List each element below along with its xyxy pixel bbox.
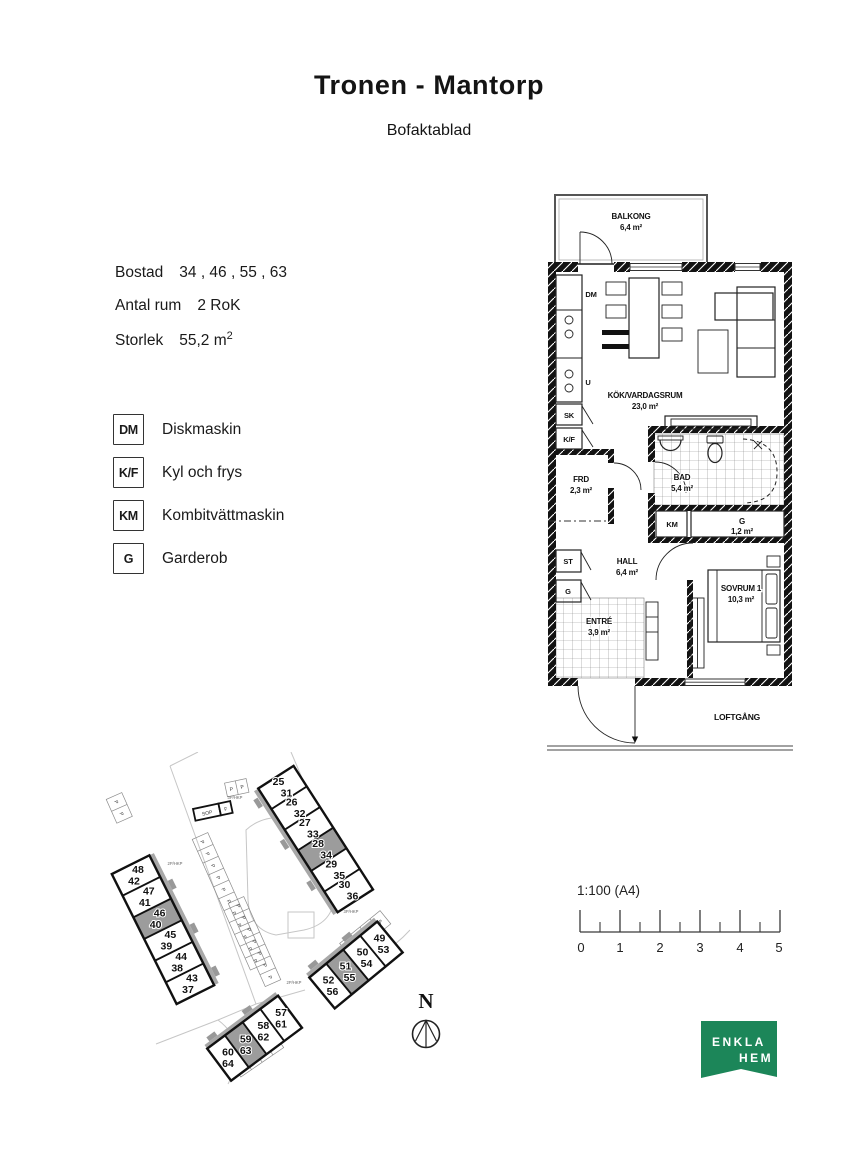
waste-building: SOP F xyxy=(193,801,233,821)
bedroom-furniture: SOVRUM 1 10,3 m² xyxy=(656,543,780,668)
svg-text:57: 57 xyxy=(275,1007,287,1019)
hkp-label: 2P/HKP xyxy=(168,861,183,866)
superscript: 2 xyxy=(227,330,233,342)
sofa xyxy=(715,293,773,320)
dining-furniture xyxy=(602,278,682,358)
storage-room: FRD 2,3 m² xyxy=(549,463,641,521)
sink-icon xyxy=(565,316,573,324)
logo-line1: ENKLA xyxy=(712,1035,766,1049)
svg-text:P: P xyxy=(234,904,241,910)
balcony: BALKONG 6,4 m² xyxy=(555,195,707,264)
room-bedroom-area: 10,3 m² xyxy=(728,595,755,604)
legend: DM Diskmaskin K/F Kyl och frys KM Kombit… xyxy=(113,414,284,574)
info-value: 55,2 m2 xyxy=(179,330,233,350)
svg-text:54: 54 xyxy=(361,958,373,970)
closets: KM G 1,2 m² xyxy=(656,511,784,537)
label-st: ST xyxy=(563,557,573,566)
svg-text:37: 37 xyxy=(182,984,194,996)
svg-text:29: 29 xyxy=(325,858,337,870)
legend-symbol-box: KM xyxy=(113,500,144,531)
scale-bar: 1:100 (A4) 0 1 2 3 4 5 xyxy=(577,883,787,963)
room-closet-label: G xyxy=(739,517,745,526)
legend-item-dm: DM Diskmaskin xyxy=(113,414,284,445)
coffee-table xyxy=(698,330,728,373)
svg-text:52: 52 xyxy=(323,975,335,987)
svg-text:P: P xyxy=(219,887,226,893)
brand-logo: ENKLA HEM xyxy=(701,1021,777,1083)
building-37-48 xyxy=(112,851,223,1004)
legend-symbol-box: DM xyxy=(113,414,144,445)
hall: ST G HALL 6,4 m² xyxy=(556,550,638,602)
svg-text:P: P xyxy=(266,975,273,981)
info-label: Bostad xyxy=(115,264,163,282)
hkp-label: 3P/HKP xyxy=(344,909,359,914)
room-entry-label: ENTRÉ xyxy=(586,617,613,626)
shoe-cabinet xyxy=(646,602,658,660)
scale-tick-numbers: 0 1 2 3 4 5 xyxy=(577,940,782,955)
label-g: G xyxy=(565,587,571,596)
entry-tiles xyxy=(556,598,644,678)
bed xyxy=(708,570,780,642)
pillow xyxy=(766,574,777,604)
legend-label: Kombitvättmaskin xyxy=(162,507,284,525)
svg-text:P: P xyxy=(112,800,119,806)
svg-text:P: P xyxy=(229,786,234,793)
room-kitchen-living-label: KÖK/VARDAGSRUM xyxy=(608,391,683,400)
svg-text:0: 0 xyxy=(577,940,584,955)
svg-text:P: P xyxy=(250,939,257,945)
logo-ribbon-icon xyxy=(701,1021,777,1078)
building-57-64 xyxy=(202,988,302,1081)
svg-text:51: 51 xyxy=(340,961,352,973)
legend-symbol-box: G xyxy=(113,543,144,574)
label-sk: SK xyxy=(564,411,575,420)
svg-text:25: 25 xyxy=(273,776,285,788)
svg-text:36: 36 xyxy=(347,891,359,903)
building-49-56 xyxy=(303,914,403,1009)
svg-text:2: 2 xyxy=(656,940,663,955)
svg-text:P: P xyxy=(245,927,252,933)
svg-text:58: 58 xyxy=(258,1020,270,1032)
label-kf: K/F xyxy=(563,435,575,444)
svg-text:P: P xyxy=(261,963,268,969)
room-hall-area: 6,4 m² xyxy=(616,568,638,577)
svg-text:64: 64 xyxy=(222,1058,234,1070)
info-value: 2 RoK xyxy=(197,297,240,315)
svg-text:P: P xyxy=(118,811,125,817)
nightstand xyxy=(767,556,780,567)
apartment-info: Bostad 34 , 46 , 55 , 63 Antal rum 2 RoK… xyxy=(115,264,287,350)
kitchen-fixtures: DM U SK K/F xyxy=(556,275,597,449)
svg-text:P: P xyxy=(255,951,262,957)
svg-text:P: P xyxy=(209,863,216,869)
svg-text:42: 42 xyxy=(128,876,140,888)
legend-label: Kyl och frys xyxy=(162,464,242,482)
svg-text:44: 44 xyxy=(175,951,187,963)
svg-text:30: 30 xyxy=(339,879,351,891)
room-bath-label: BAD xyxy=(674,473,691,482)
svg-text:61: 61 xyxy=(275,1018,287,1030)
scale-label: 1:100 (A4) xyxy=(577,883,787,898)
svg-text:P: P xyxy=(240,915,247,921)
hob-icon xyxy=(565,384,573,392)
info-value: 34 , 46 , 55 , 63 xyxy=(179,264,287,282)
label-oven: U xyxy=(585,378,590,387)
svg-text:63: 63 xyxy=(240,1045,252,1057)
parking-row: PPPPPPPPPPP xyxy=(192,833,266,971)
svg-text:27: 27 xyxy=(299,817,311,829)
info-row-antal-rum: Antal rum 2 RoK xyxy=(115,297,287,315)
scale-ruler: 0 1 2 3 4 5 xyxy=(577,900,787,958)
svg-text:26: 26 xyxy=(286,797,298,809)
walkway: LOFTGÅNG xyxy=(547,712,793,750)
svg-text:43: 43 xyxy=(186,973,198,985)
hob-icon xyxy=(565,370,573,378)
label-dishwasher: DM xyxy=(585,290,596,299)
svg-text:38: 38 xyxy=(171,962,183,974)
room-entry-area: 3,9 m² xyxy=(588,628,610,637)
room-closet-area: 1,2 m² xyxy=(731,527,753,536)
svg-text:62: 62 xyxy=(258,1032,270,1044)
room-balcony-area: 6,4 m² xyxy=(620,223,642,232)
svg-text:40: 40 xyxy=(150,919,162,931)
svg-text:46: 46 xyxy=(154,907,166,919)
svg-text:39: 39 xyxy=(161,941,173,953)
svg-text:41: 41 xyxy=(139,897,151,909)
room-frd-label: FRD xyxy=(573,475,589,484)
svg-text:1: 1 xyxy=(616,940,623,955)
svg-text:60: 60 xyxy=(222,1047,234,1059)
bedroom-door-swing xyxy=(656,543,693,580)
svg-text:4: 4 xyxy=(736,940,743,955)
svg-text:55: 55 xyxy=(344,972,356,984)
svg-text:P: P xyxy=(214,875,221,881)
balcony-door-swing xyxy=(580,232,612,264)
floor-plan: BALKONG 6,4 m² xyxy=(545,190,795,760)
logo-line2: HEM xyxy=(739,1051,773,1065)
svg-text:50: 50 xyxy=(357,947,369,959)
hkp-label: 3P/HKP xyxy=(228,795,243,800)
label-km: KM xyxy=(666,520,677,529)
compass-icon xyxy=(413,1021,440,1048)
legend-label: Garderob xyxy=(162,550,227,568)
legend-item-km: KM Kombitvättmaskin xyxy=(113,500,284,531)
svg-text:59: 59 xyxy=(240,1033,252,1045)
svg-text:28: 28 xyxy=(312,838,324,850)
svg-text:P: P xyxy=(204,851,211,857)
info-row-bostad: Bostad 34 , 46 , 55 , 63 xyxy=(115,264,287,282)
room-kitchen-living-area: 23,0 m² xyxy=(632,402,659,411)
room-balcony-label: BALKONG xyxy=(611,212,650,221)
legend-label: Diskmaskin xyxy=(162,421,241,439)
nightstand xyxy=(767,645,780,655)
svg-text:53: 53 xyxy=(378,944,390,956)
svg-text:47: 47 xyxy=(143,886,155,898)
pillow xyxy=(766,608,777,638)
legend-symbol-box: K/F xyxy=(113,457,144,488)
room-bedroom-label: SOVRUM 1 xyxy=(721,584,762,593)
north-label: N xyxy=(418,989,433,1013)
info-label: Storlek xyxy=(115,332,163,350)
room-bath-area: 5,4 m² xyxy=(671,484,693,493)
info-label: Antal rum xyxy=(115,297,181,315)
legend-item-g: G Garderob xyxy=(113,543,284,574)
page-title: Tronen - Mantorp xyxy=(0,70,858,101)
svg-text:5: 5 xyxy=(775,940,782,955)
svg-text:3: 3 xyxy=(696,940,703,955)
hkp-label: 2P/HKP xyxy=(287,980,302,985)
page-subtitle: Bofaktablad xyxy=(0,122,858,140)
svg-text:48: 48 xyxy=(132,864,144,876)
entry-door-swing xyxy=(578,686,635,743)
svg-text:56: 56 xyxy=(327,986,339,998)
parking-row: PP xyxy=(106,793,132,824)
room-hall-label: HALL xyxy=(617,557,638,566)
sink-icon xyxy=(565,330,573,338)
info-row-storlek: Storlek 55,2 m2 xyxy=(115,330,287,350)
svg-text:49: 49 xyxy=(374,933,386,945)
north-indicator: N xyxy=(404,988,448,1066)
room-frd-area: 2,3 m² xyxy=(570,486,592,495)
svg-text:45: 45 xyxy=(165,929,177,941)
frd-door-swing xyxy=(614,463,641,490)
door-swing-arrow xyxy=(632,737,638,744)
svg-text:P: P xyxy=(240,784,245,791)
svg-text:P: P xyxy=(198,840,205,846)
walkway-label: LOFTGÅNG xyxy=(714,712,761,722)
legend-item-kf: K/F Kyl och frys xyxy=(113,457,284,488)
